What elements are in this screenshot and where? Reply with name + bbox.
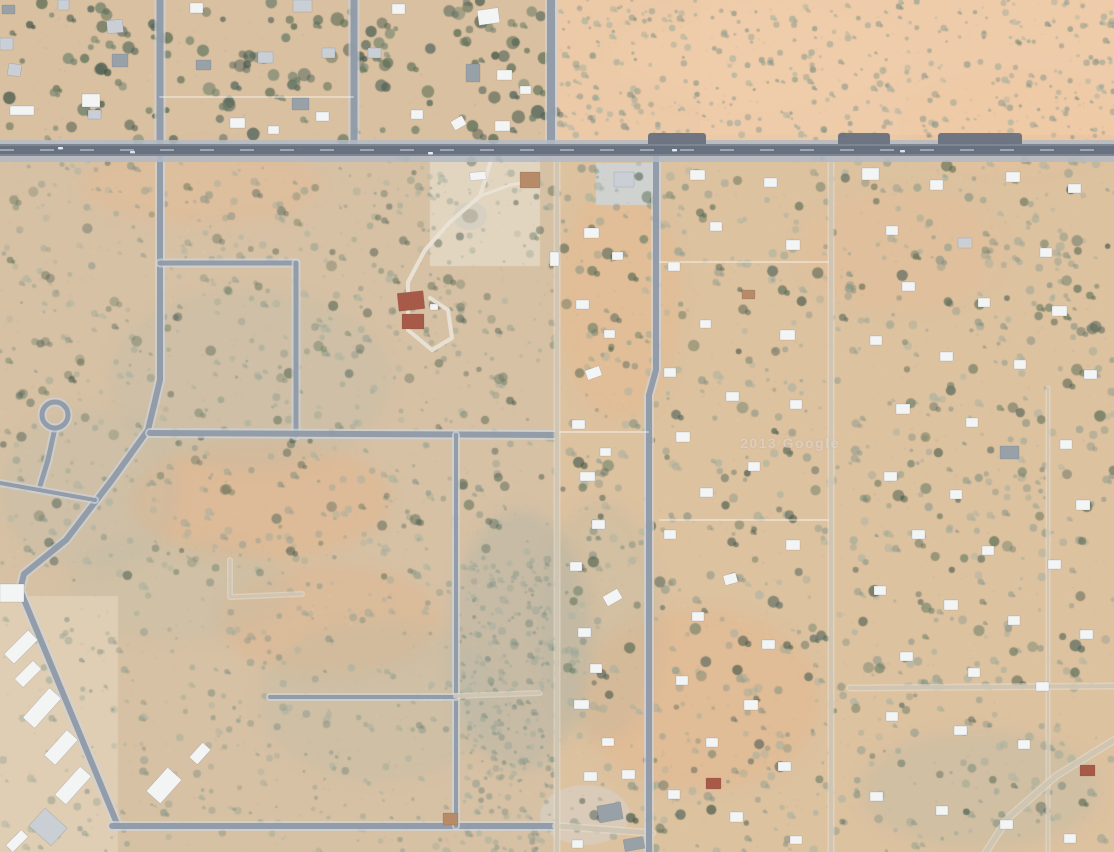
- building: [622, 770, 635, 779]
- building: [900, 652, 913, 661]
- building: [870, 792, 883, 801]
- building: [966, 418, 978, 427]
- building: [874, 586, 886, 595]
- building: [592, 520, 605, 529]
- building: [612, 252, 623, 260]
- building: [944, 600, 958, 610]
- vehicle: [428, 152, 433, 154]
- building: [664, 368, 676, 377]
- building: [7, 63, 22, 77]
- building: [700, 488, 713, 497]
- vehicle: [298, 148, 303, 150]
- road-street-grid-h3-ext: [456, 693, 540, 696]
- building: [1080, 765, 1095, 776]
- building: [293, 0, 312, 12]
- building: [572, 840, 583, 848]
- building: [1084, 370, 1097, 379]
- road-culdesac-stem: [40, 428, 55, 486]
- building: [1014, 360, 1026, 369]
- building: [950, 490, 962, 499]
- building: [477, 8, 500, 26]
- building: [112, 54, 128, 67]
- building: [1068, 184, 1081, 193]
- building: [1036, 682, 1049, 691]
- road-lot-trail-mid: [230, 560, 302, 597]
- building: [790, 836, 802, 844]
- building: [4, 630, 38, 664]
- building: [710, 222, 722, 231]
- building: [668, 790, 680, 799]
- building: [368, 48, 381, 58]
- building: [726, 392, 739, 401]
- building: [786, 240, 800, 250]
- building: [600, 448, 611, 456]
- building: [497, 70, 512, 80]
- building: [940, 352, 953, 361]
- building: [443, 813, 458, 825]
- building: [1000, 446, 1019, 459]
- building: [580, 472, 595, 481]
- building: [744, 700, 758, 710]
- building: [29, 808, 67, 846]
- building: [1048, 560, 1061, 569]
- road-culdesac-spur: [0, 483, 95, 500]
- building: [55, 766, 92, 804]
- building: [495, 121, 510, 131]
- building: [0, 584, 24, 602]
- vehicle: [672, 149, 677, 151]
- building: [520, 172, 540, 188]
- building: [786, 540, 800, 550]
- building: [570, 562, 582, 571]
- building: [764, 178, 777, 187]
- building: [572, 420, 585, 429]
- building: [902, 282, 915, 291]
- building: [602, 738, 614, 746]
- building: [430, 304, 438, 310]
- vehicle: [900, 150, 905, 152]
- building: [189, 742, 211, 764]
- building: [778, 762, 791, 771]
- building: [550, 252, 559, 266]
- building: [316, 112, 329, 121]
- building: [742, 290, 755, 299]
- building: [6, 830, 29, 852]
- building: [968, 668, 980, 677]
- building: [258, 52, 273, 63]
- building: [322, 48, 335, 58]
- building: [574, 700, 589, 709]
- building: [1080, 630, 1093, 639]
- building: [292, 98, 309, 110]
- building: [585, 366, 603, 381]
- building: [978, 298, 990, 307]
- building: [676, 676, 688, 685]
- building: [578, 628, 591, 637]
- building: [597, 802, 624, 823]
- building: [44, 730, 78, 765]
- road-street-grid-h2: [150, 433, 556, 435]
- building: [1018, 740, 1030, 749]
- building: [1040, 248, 1052, 257]
- building: [602, 588, 622, 606]
- building: [58, 0, 69, 10]
- building: [230, 118, 245, 128]
- vehicle: [58, 147, 63, 149]
- building: [590, 664, 602, 673]
- building: [392, 4, 405, 14]
- building: [88, 110, 101, 119]
- building: [668, 262, 680, 271]
- building: [1064, 834, 1076, 843]
- building: [146, 767, 182, 803]
- building: [1052, 306, 1067, 316]
- building: [700, 320, 711, 328]
- building: [706, 778, 721, 789]
- building: [576, 300, 589, 309]
- building: [862, 168, 879, 180]
- building: [762, 640, 775, 649]
- building: [1076, 500, 1090, 510]
- road-street-bottom-ext: [556, 826, 652, 833]
- building: [10, 106, 34, 115]
- building: [82, 94, 100, 107]
- building: [676, 432, 690, 442]
- satellite-map-view[interactable]: 2013 Google: [0, 0, 1114, 852]
- building: [692, 612, 704, 621]
- building: [470, 171, 487, 180]
- building: [411, 110, 423, 119]
- building: [1000, 820, 1013, 829]
- building: [1008, 616, 1020, 625]
- building: [723, 572, 738, 585]
- building: [1060, 440, 1072, 449]
- road-culdesac-bulb: [42, 402, 68, 428]
- building: [196, 60, 211, 70]
- building: [15, 661, 42, 688]
- building: [450, 115, 466, 130]
- building: [23, 688, 62, 728]
- building: [958, 238, 972, 248]
- building: [2, 5, 15, 14]
- building: [690, 170, 705, 180]
- building: [954, 726, 967, 735]
- building: [896, 404, 910, 414]
- building: [982, 546, 994, 555]
- building: [466, 64, 480, 82]
- building: [397, 291, 425, 312]
- building: [706, 738, 718, 747]
- building: [623, 836, 645, 851]
- building: [190, 3, 203, 13]
- building: [106, 19, 123, 33]
- building: [780, 330, 795, 340]
- building: [1006, 172, 1020, 182]
- building: [614, 172, 634, 187]
- building: [584, 772, 597, 781]
- building: [0, 38, 13, 50]
- building: [936, 806, 948, 815]
- roads-layer: [0, 0, 1114, 852]
- building: [886, 226, 898, 235]
- building: [748, 462, 760, 471]
- building: [268, 126, 279, 134]
- building: [912, 530, 925, 539]
- building: [884, 472, 897, 481]
- map-features-layer: [0, 0, 1114, 852]
- building: [730, 812, 743, 822]
- building: [886, 712, 898, 721]
- building: [790, 400, 802, 409]
- building: [520, 86, 531, 94]
- building: [664, 530, 676, 539]
- building: [604, 330, 615, 338]
- building: [402, 314, 424, 329]
- building: [584, 228, 599, 238]
- building: [870, 336, 882, 345]
- vehicle: [130, 151, 135, 153]
- road-street-right-h: [850, 686, 1114, 688]
- road-street-east-main: [649, 156, 656, 852]
- building: [930, 180, 943, 190]
